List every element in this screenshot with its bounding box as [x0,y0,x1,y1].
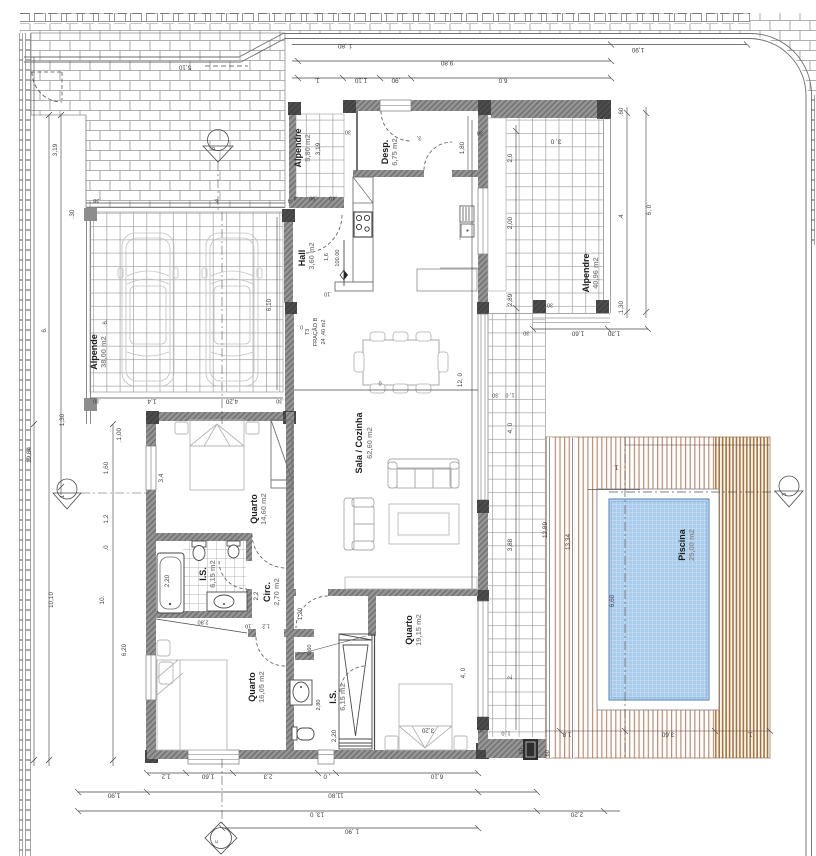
svg-text:24 ,40 m2: 24 ,40 m2 [321,320,327,345]
svg-text:30: 30 [477,130,483,136]
svg-text:T3: T3 [305,329,311,336]
svg-text:38,00 m2: 38,00 m2 [99,336,108,368]
svg-text:6,20: 6,20 [121,643,128,656]
svg-text:2,80: 2,80 [198,619,209,625]
svg-text:11,80: 11,80 [328,792,344,799]
svg-text:2,0: 2,0 [507,153,514,162]
svg-text:Sala / Cozinha: Sala / Cozinha [354,411,364,473]
svg-text:3,: 3, [416,135,421,141]
svg-text:6,10: 6,10 [430,773,443,780]
svg-text:0 .: 0 . [296,324,303,330]
svg-text:.4: .4 [294,195,299,201]
svg-text:4,20: 4,20 [225,398,238,405]
svg-text:.60: .60 [618,107,625,116]
svg-text:1,4: 1,4 [147,398,156,405]
svg-text:5,10: 5,10 [178,64,191,71]
svg-text:3,88: 3,88 [507,538,514,551]
svg-text:1,90: 1,90 [107,792,120,799]
svg-text:.0: .0 [103,545,110,551]
svg-text:30: 30 [345,129,351,135]
svg-text:100.00: 100.00 [335,249,341,266]
svg-text:2,20: 2,20 [331,729,338,742]
svg-text:2,3: 2,3 [263,773,272,780]
svg-text:40,96 m2: 40,96 m2 [591,257,600,289]
svg-text:Quarto: Quarto [247,672,257,702]
svg-text:1,80: 1,80 [459,141,466,154]
svg-text:0: 0 [378,380,381,386]
svg-text:Alpende: Alpende [89,334,99,370]
svg-text:,38: ,38 [93,197,101,203]
svg-text:2,00: 2,00 [507,216,514,229]
svg-text:Quarto: Quarto [249,494,259,524]
svg-text:1,60: 1,60 [571,330,584,337]
svg-text:FRAÇÃO B: FRAÇÃO B [312,317,319,346]
svg-text:Alpendre: Alpendre [293,128,303,167]
svg-text:19,15 m2: 19,15 m2 [414,614,423,646]
svg-text:Desp.: Desp. [380,140,390,165]
svg-text:.30: .30 [478,727,486,733]
svg-text:6,15 m2: 6,15 m2 [208,560,217,588]
svg-text:12,89: 12,89 [542,522,549,538]
svg-text:.30: .30 [523,330,531,336]
svg-text:2.: 2. [507,674,514,680]
svg-text:.60: .60 [545,750,551,758]
svg-text:3: 3 [782,493,788,496]
svg-text:1,90: 1,90 [631,46,644,53]
svg-text:12, 0: 12, 0 [457,372,464,387]
svg-text:.10: .10 [245,623,253,629]
svg-text:c: c [214,840,220,843]
svg-text:3,19: 3,19 [315,142,322,155]
svg-text:4, 0: 4, 0 [460,667,467,678]
svg-text:6.: 6. [213,197,218,203]
svg-text:2,89: 2,89 [507,293,514,306]
svg-text:.4: .4 [288,197,293,203]
svg-text:.30: .30 [276,398,284,404]
svg-text:.1,00: .1,00 [116,427,123,442]
svg-text:,40: ,40 [329,195,337,201]
svg-text:30: 30 [547,302,553,308]
svg-text:16,05 m2: 16,05 m2 [257,671,266,703]
svg-text:1: 1 [60,495,66,498]
svg-text:.10: .10 [324,291,332,297]
svg-text:6.: 6. [41,327,48,333]
svg-text:2,2: 2,2 [253,591,260,600]
svg-text:13,34: 13,34 [565,534,572,550]
svg-text:0,60: 0,60 [307,645,313,656]
svg-text:19,84: 19,84 [26,447,33,463]
svg-text:6,60: 6,60 [609,594,616,607]
svg-text:Circ.: Circ. [262,582,272,602]
svg-text:1,: 1, [747,731,753,738]
svg-text:.60: .60 [519,748,525,756]
svg-text:4, 0: 4, 0 [507,422,514,433]
svg-text:Piscina: Piscina [677,528,687,561]
svg-text:1,: 1, [314,77,320,84]
svg-text:3,20: 3,20 [421,727,434,734]
svg-text:Alpendre: Alpendre [581,253,591,292]
svg-text:2,80: 2,80 [316,700,322,711]
svg-text:I.S.: I.S. [198,567,208,581]
svg-text:1,60: 1,60 [103,461,110,474]
svg-text:62,60 m2: 62,60 m2 [365,427,374,459]
svg-text:.30: .30 [93,398,101,404]
svg-text:1 ,90: 1 ,90 [344,828,359,835]
svg-text:, 0: , 0 [323,773,331,780]
svg-text:1,20: 1,20 [297,607,304,620]
svg-text:25,00 m2: 25,00 m2 [687,529,696,561]
svg-text:.4: .4 [618,214,625,220]
svg-text:6.: 6. [102,319,109,325]
svg-text:.30: .30 [492,392,500,398]
svg-text:1,8: 1,8 [562,731,571,738]
svg-text:Quarto: Quarto [404,615,414,645]
svg-text:6,15 m2: 6,15 m2 [338,683,347,711]
svg-text:1,30: 1,30 [607,330,620,337]
svg-text:1,2: 1,2 [161,773,170,780]
svg-text:10,10: 10,10 [48,592,55,608]
svg-text:b: b [211,147,217,150]
svg-text:1, 0: 1, 0 [501,730,510,736]
svg-text:10.: 10. [99,595,106,604]
svg-text:13, 0: 13, 0 [309,811,324,818]
svg-text:1,6: 1,6 [324,253,330,261]
svg-text:5,80 m2: 5,80 m2 [303,134,312,162]
svg-text:.1,30: .1,30 [618,300,625,315]
svg-text:.30: .30 [69,209,76,218]
svg-text:3,60: 3,60 [661,731,674,738]
svg-text:14,60 m2: 14,60 m2 [259,493,268,525]
svg-text:Hall: Hall [297,250,307,267]
svg-text:1,2: 1,2 [103,514,110,523]
svg-text:1,60: 1,60 [201,773,214,780]
svg-text:6,75 m2: 6,75 m2 [390,138,399,166]
svg-text:3,60 m2: 3,60 m2 [307,242,316,270]
svg-text:2,20: 2,20 [570,811,583,818]
svg-text:3,19: 3,19 [52,143,59,156]
svg-text:6,10: 6,10 [266,298,273,311]
svg-text:1,2: 1,2 [262,623,270,629]
svg-text:6,0: 6,0 [498,77,507,84]
svg-text:1,30: 1,30 [59,413,66,426]
svg-text:3,4: 3,4 [158,473,165,482]
svg-text:1,10: 1,10 [354,77,367,84]
svg-text:2,20: 2,20 [164,574,171,587]
svg-text:,90: ,90 [309,195,317,201]
svg-text:2,70 m2: 2,70 m2 [272,578,281,606]
svg-text:1.: 1. [613,464,619,471]
svg-text:3, 0: 3, 0 [550,138,561,145]
svg-text:I.S.: I.S. [328,690,338,704]
svg-text:,90: ,90 [391,77,400,84]
svg-text:6, 0: 6, 0 [646,204,653,215]
svg-text:1, 0: 1, 0 [505,392,514,398]
svg-text:1 ,80: 1 ,80 [337,42,352,49]
svg-text:9,80: 9,80 [440,59,453,66]
